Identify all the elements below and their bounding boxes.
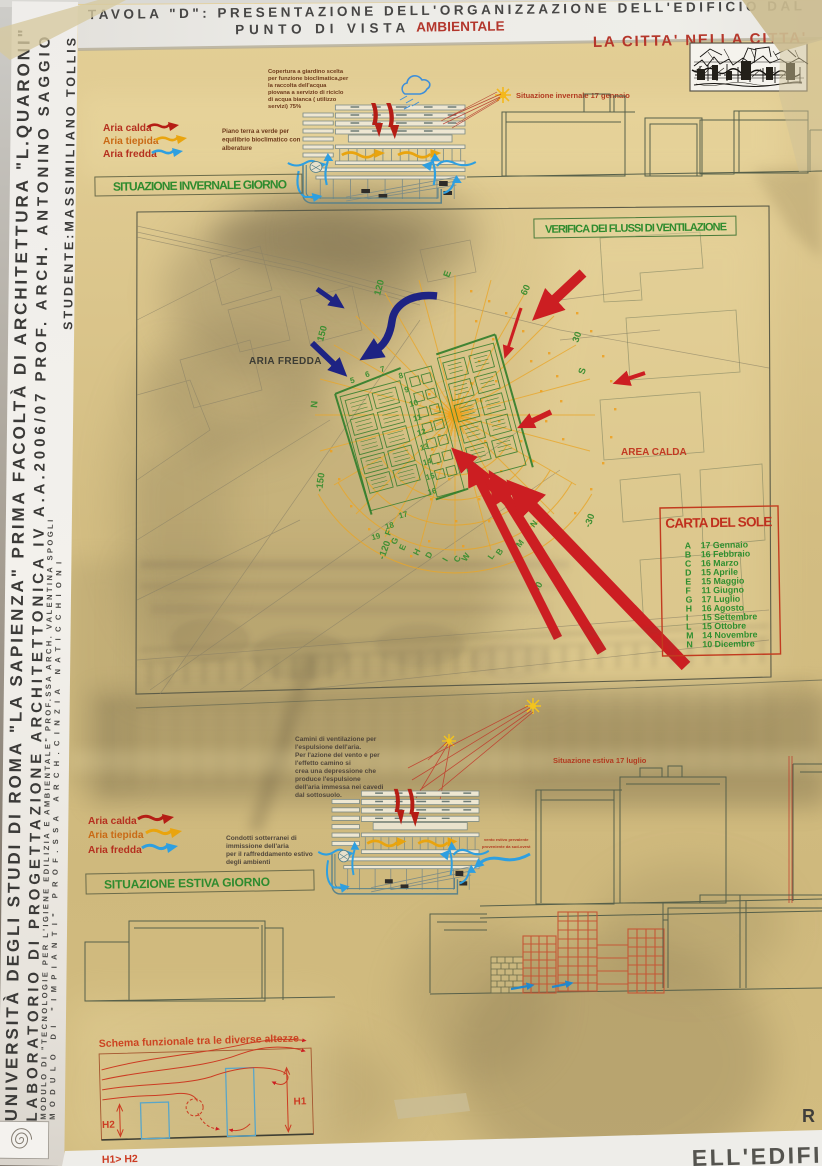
svg-text:Aria tiepida: Aria tiepida [88,830,144,841]
svg-text:CARTA DEL SOLE: CARTA DEL SOLE [665,514,772,531]
svg-text:SITUAZIONE INVERNALE GIORNO: SITUAZIONE INVERNALE GIORNO [113,177,287,193]
svg-text:H1> H2: H1> H2 [102,1153,138,1166]
svg-text:R: R [802,1106,815,1126]
svg-text:Aria fredda: Aria fredda [88,845,142,856]
svg-text:H1: H1 [293,1096,307,1107]
svg-text:Aria tiepida: Aria tiepida [103,136,159,147]
svg-text:Aria fredda: Aria fredda [103,149,157,160]
svg-text:Aria calda: Aria calda [103,123,152,134]
svg-text:10 Dicembre: 10 Dicembre [702,638,755,649]
svg-text:ELL'EDIFI: ELL'EDIFI [691,1142,822,1166]
svg-text:SITUAZIONE ESTIVA GIORNO: SITUAZIONE ESTIVA GIORNO [104,875,270,892]
svg-text:Situazione estiva 17 luglio: Situazione estiva 17 luglio [553,756,647,765]
svg-text:ARIA FREDDA: ARIA FREDDA [249,356,322,367]
svg-text:Situazione invernale 17 genna: Situazione invernale 17 gennaio [516,91,630,100]
svg-text:H2: H2 [102,1120,116,1131]
svg-text:AREA CALDA: AREA CALDA [621,447,687,458]
svg-text:VERIFICA DEI FLUSSI DI VENTILA: VERIFICA DEI FLUSSI DI VENTILAZIONE [545,221,727,236]
svg-text:N: N [686,639,693,649]
svg-text:Aria calda: Aria calda [88,816,137,827]
svg-text:N: N [309,400,321,408]
svg-text:AMBIENTALE: AMBIENTALE [416,18,506,34]
